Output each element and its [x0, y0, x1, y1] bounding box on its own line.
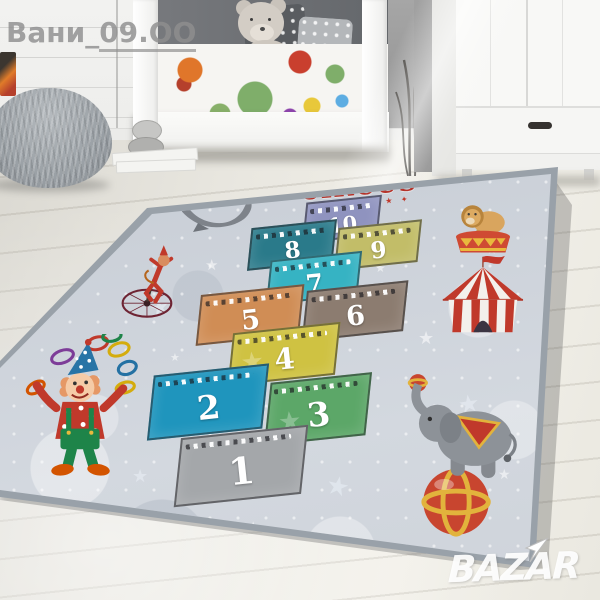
bazar-logo-watermark: BAZAR — [448, 546, 600, 598]
square-number: 1 — [226, 443, 257, 499]
wall-picture — [0, 52, 16, 96]
wardrobe-doors — [456, 0, 600, 106]
star-icon: ★ — [324, 472, 352, 502]
lion-on-podium-illustration — [442, 194, 524, 254]
square-number: 3 — [305, 389, 333, 439]
wardrobe-side-panel — [432, 0, 456, 176]
clown-juggling-rings-illustration — [8, 334, 152, 478]
teddy-eye — [268, 18, 271, 21]
watermark-suffix: 09.ОО — [99, 16, 196, 52]
bazar-logo-text: BAZAR — [447, 544, 580, 592]
hopscotch-square-1: 1 — [174, 425, 309, 508]
bed-frame-rail — [133, 112, 389, 152]
wardrobe-base — [456, 153, 600, 170]
drawer-handle — [528, 122, 552, 129]
hopscotch-square-2: 2 — [147, 363, 269, 440]
elephant-on-ball-illustration — [396, 370, 538, 540]
cursor-arrow-icon — [522, 536, 552, 566]
bed-post-right — [362, 0, 387, 152]
star-icon: ★ — [205, 258, 218, 273]
teddy-nose — [260, 27, 265, 31]
wardrobe-drawer — [456, 106, 600, 155]
teddy-eye — [250, 18, 253, 21]
seller-username-watermark: Вани_09.ОО — [6, 16, 196, 49]
bedroom-photo: ★ ★ ★ ★ ★ ★ ★ ★ ★ ★ ★ ★ ★ ★ ★ ★ ★ ★ ★ CI… — [0, 0, 600, 600]
monkey-on-unicycle-illustration — [116, 236, 188, 320]
square-number: 2 — [194, 381, 222, 433]
circus-tent-illustration — [430, 252, 532, 338]
watermark-prefix: Вани_ — [6, 16, 99, 49]
gray-wall-strip — [414, 0, 434, 172]
square-number: 6 — [344, 297, 366, 335]
square-number: 4 — [272, 339, 296, 379]
star-icon: ★ — [170, 352, 180, 363]
square-number: 9 — [369, 235, 388, 265]
